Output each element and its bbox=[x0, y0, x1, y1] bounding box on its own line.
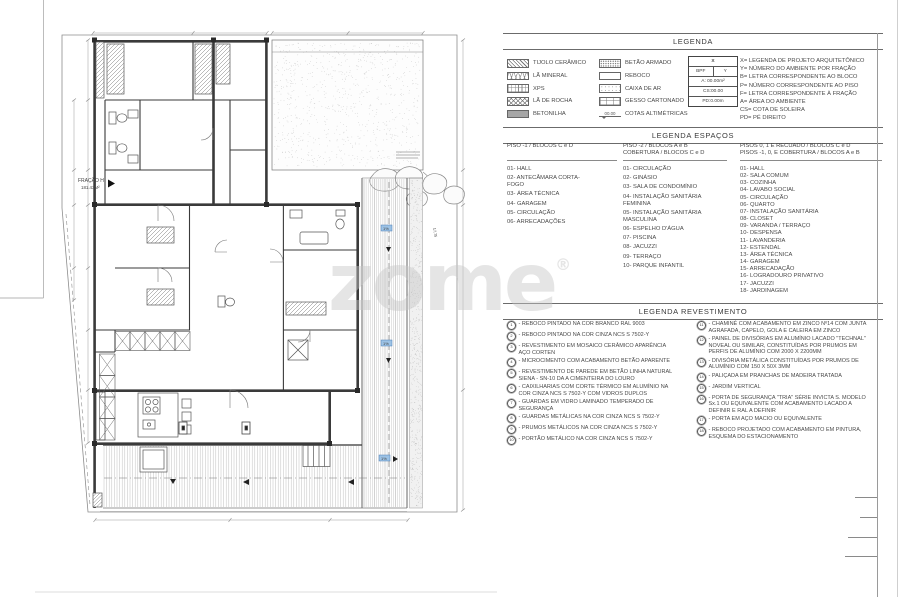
solid-gray-swatch bbox=[507, 110, 529, 119]
fraction-label: FRAÇÃO H 181.43M² bbox=[78, 177, 115, 190]
floor-plan-drawing: 1% 1% 17,75 bbox=[0, 0, 505, 597]
hatch-diagonal-swatch bbox=[507, 59, 529, 68]
space-item: 06- ESPELHO D'ÁGUA bbox=[623, 226, 705, 233]
material-label: XPS bbox=[533, 86, 545, 92]
tag-pd: PD:0.00m bbox=[689, 96, 737, 106]
legend-materials-col1: TIJOLO CERÂMICO LÃ MINERAL XPS LÃ DE ROC… bbox=[507, 57, 597, 120]
architectural-drawing-sheet: 1% 1% 17,75 bbox=[0, 0, 900, 597]
legend-abbreviations: X= LEGENDA DE PROJETO ARQUITETÔNICOY= NÚ… bbox=[740, 57, 883, 123]
finish-number-badge: 6 bbox=[507, 384, 516, 393]
abbreviation-line: B= LETRA CORRESPONDENTE AO BLOCO bbox=[740, 73, 883, 81]
space-item: 12- ESTENDAL bbox=[740, 245, 882, 252]
level-mark-symbol: 00.00 bbox=[599, 112, 621, 117]
spaces-col-2: PISO -2 / BLOCOS A e B COBERTURA / BLOCO… bbox=[623, 143, 727, 272]
finish-item: 8 - GUARDAS METÁLICAS NA COR CINZA NCS S… bbox=[507, 414, 677, 423]
tag-area: A: 00.00m² bbox=[689, 76, 737, 86]
space-item: 03- ÁREA TÉCNICA bbox=[507, 191, 589, 198]
material-label: LÃ MINERAL bbox=[533, 73, 567, 79]
finish-item: 3 - REVESTIMENTO EM MOSAICO CERÂMICO APA… bbox=[507, 343, 677, 356]
finish-item: 7 - GUARDAS EM VIDRO LAMINADO TEMPERADO … bbox=[507, 399, 677, 412]
ambient-tag-box: X BPFY A: 00.00m² CS:00.00 PD:0.00m bbox=[688, 56, 738, 107]
space-item: 03- COZINHA bbox=[740, 180, 882, 187]
finishes-col-1: 1 - REBOCO PINTADO NA COR BRANCO RAL 900… bbox=[507, 321, 677, 447]
finish-number-badge: 17 bbox=[697, 416, 706, 425]
tag-bpf-y: BPFY bbox=[689, 66, 737, 76]
legend-material-row: BETONILHA bbox=[507, 108, 597, 121]
finish-number-badge: 7 bbox=[507, 399, 516, 408]
space-item: 04- LAVABO SOCIAL bbox=[740, 187, 882, 194]
abbreviation-line: P= NÚMERO CORRESPONDENTE AO PISO bbox=[740, 82, 883, 90]
spaces-col-header: PISO -2 / BLOCOS A e B COBERTURA / BLOCO… bbox=[623, 143, 727, 161]
material-label: GESSO CARTONADO bbox=[625, 98, 684, 104]
space-item: 03- SALA DE CONDOMÍNIO bbox=[623, 184, 705, 191]
finish-number-badge: 15 bbox=[697, 384, 706, 393]
finish-item: 12 - PAINEL DE DIVISÓRIAS EM ALUMÍNIO LA… bbox=[697, 336, 875, 356]
space-item: 15- ARRECADAÇÃO bbox=[740, 266, 882, 273]
legend-material-row: LÃ MINERAL bbox=[507, 70, 597, 83]
legend-title: LEGENDA bbox=[503, 33, 883, 50]
fine-grid-swatch bbox=[507, 84, 529, 93]
space-item: 08- JACUZZI bbox=[623, 244, 705, 251]
material-label: BETONILHA bbox=[533, 111, 566, 117]
space-item: 05- INSTALAÇÃO SANITÁRIA MASCULINA bbox=[623, 210, 705, 224]
scale-tick bbox=[848, 537, 877, 538]
svg-text:FRAÇÃO H: FRAÇÃO H bbox=[78, 177, 104, 184]
legend-material-row: TIJOLO CERÂMICO bbox=[507, 57, 597, 70]
space-item: 10- PARQUE INFANTIL bbox=[623, 263, 705, 270]
space-item: 17- JACUZZI bbox=[740, 281, 882, 288]
svg-text:1%: 1% bbox=[381, 456, 387, 461]
finish-item: 18 - REBOCO PROJETADO COM ACABAMENTO EM … bbox=[697, 427, 875, 440]
spaces-col-3: PISOS 0, 1 E RECUADO / BLOCOS C e D PISO… bbox=[740, 143, 882, 295]
material-label: BETÃO ARMADO bbox=[625, 60, 671, 66]
svg-text:181.43M²: 181.43M² bbox=[81, 185, 100, 190]
space-item: 02- GINÁSIO bbox=[623, 175, 705, 182]
deck-arrow-down bbox=[170, 479, 176, 484]
abbreviation-line: A= ÁREA DO AMBIENTE bbox=[740, 98, 883, 106]
legend-material-row: 00.00 COTAS ALTIMÉTRICAS bbox=[599, 108, 711, 121]
finish-item: 14 - PALIÇADA EM PRANCHAS DE MADEIRA TRA… bbox=[697, 373, 875, 382]
space-item: 07- PISCINA bbox=[623, 235, 705, 242]
material-label: LÃ DE ROCHA bbox=[533, 98, 572, 104]
space-item: 02- SALA COMUM bbox=[740, 173, 882, 180]
space-item: 05- CIRCULAÇÃO bbox=[507, 210, 589, 217]
finish-item: 1 - REBOCO PINTADO NA COR BRANCO RAL 900… bbox=[507, 321, 677, 330]
finish-number-badge: 5 bbox=[507, 369, 516, 378]
sheet-edge-line bbox=[897, 0, 898, 597]
finish-item: 16 - PORTA DE SEGURANÇA "TRIA" SÉRIE INV… bbox=[697, 395, 875, 415]
zigzag-swatch bbox=[507, 72, 529, 81]
finish-number-badge: 10 bbox=[507, 436, 516, 445]
finish-number-badge: 18 bbox=[697, 427, 706, 436]
space-item: 07- INSTALAÇÃO SANITÁRIA bbox=[740, 209, 882, 216]
space-item: 11- LAVANDERIA bbox=[740, 238, 882, 245]
space-item: 16- LOGRADOURO PRIVATIVO bbox=[740, 273, 882, 280]
slope-marker: 1% bbox=[379, 455, 398, 462]
finish-item: 6 - CAIXILHARIAS COM CORTE TÉRMICO EM AL… bbox=[507, 384, 677, 397]
speckle-swatch bbox=[599, 59, 621, 68]
space-item: 01- HALL bbox=[507, 166, 589, 173]
finish-number-badge: 4 bbox=[507, 358, 516, 367]
material-label: REBOCO bbox=[625, 73, 650, 79]
plain-swatch bbox=[599, 72, 621, 81]
deck-planter bbox=[140, 447, 167, 472]
space-item: 09- VARANDA / TERRAÇO bbox=[740, 223, 882, 230]
finish-item: 13 - DIVISÓRIA METÁLICA CONSTITUÍDAS POR… bbox=[697, 358, 875, 371]
svg-text:1%: 1% bbox=[383, 226, 389, 231]
finishes-col-2: 11 - CHAMINÉ COM ACABAMENTO EM ZINCO Nº1… bbox=[697, 321, 875, 442]
tag-cs: CS:00.00 bbox=[689, 86, 737, 96]
scale-tick bbox=[845, 556, 877, 557]
finish-number-badge: 16 bbox=[697, 395, 706, 404]
cell-grid-swatch bbox=[599, 97, 621, 106]
space-item: 18- JARDINAGEM bbox=[740, 288, 882, 295]
spaces-col-1: PISO -1 / BLOCOS C e D 01- HALL02- ANTEC… bbox=[507, 143, 617, 228]
space-item: 09- TERRAÇO bbox=[623, 254, 705, 261]
space-item: 04- INSTALAÇÃO SANITÁRIA FEMININA bbox=[623, 194, 705, 208]
deck-stairs bbox=[303, 446, 330, 467]
deck-area: 1% bbox=[100, 445, 407, 512]
finish-number-badge: 1 bbox=[507, 321, 516, 330]
material-label: CAIXA DE AR bbox=[625, 86, 661, 92]
scale-tick bbox=[855, 497, 877, 498]
tag-x: X bbox=[689, 57, 737, 66]
title-block-border-line bbox=[877, 33, 878, 597]
material-label: COTAS ALTIMÉTRICAS bbox=[625, 111, 688, 117]
space-item: 01- HALL bbox=[740, 166, 882, 173]
space-item: 04- GARAGEM bbox=[507, 201, 589, 208]
spaces-col-header: PISO -1 / BLOCOS C e D bbox=[507, 143, 617, 161]
finish-item: 9 - PRUMOS METÁLICOS NA COR CINZA NCS S … bbox=[507, 425, 677, 434]
space-item: 06- ARRECADAÇÕES bbox=[507, 219, 589, 226]
space-item: 13- ÁREA TÉCNICA bbox=[740, 252, 882, 259]
ramp-area: 1% 1% 17,75 bbox=[362, 178, 438, 508]
finish-number-badge: 12 bbox=[697, 336, 706, 345]
scale-tick bbox=[860, 517, 877, 518]
legend-material-row: LÃ DE ROCHA bbox=[507, 95, 597, 108]
svg-text:1%: 1% bbox=[383, 341, 389, 346]
finish-number-badge: 9 bbox=[507, 425, 516, 434]
abbreviation-line: X= LEGENDA DE PROJETO ARQUITETÔNICO bbox=[740, 57, 883, 65]
finish-number-badge: 2 bbox=[507, 332, 516, 341]
finish-item: 11 - CHAMINÉ COM ACABAMENTO EM ZINCO Nº1… bbox=[697, 321, 875, 334]
finish-number-badge: 11 bbox=[697, 321, 706, 330]
finish-item: 4 - MICROCIMENTO COM ACABAMENTO BETÃO AP… bbox=[507, 358, 677, 367]
finish-item: 10 - PORTÃO METÁLICO NA COR CINZA NCS S … bbox=[507, 436, 677, 445]
space-item: 10- DESPENSA bbox=[740, 230, 882, 237]
space-item: 05- CIRCULAÇÃO bbox=[740, 195, 882, 202]
garden-stipple-area bbox=[272, 40, 423, 170]
abbreviation-line: PD= PÉ DIREITO bbox=[740, 114, 883, 122]
material-label: TIJOLO CERÂMICO bbox=[533, 60, 586, 66]
diamond-hatch-swatch bbox=[507, 97, 529, 106]
finish-item: 2 - REBOCO PINTADO NA COR CINZA NCS S 75… bbox=[507, 332, 677, 341]
legend-column: LEGENDA TIJOLO CERÂMICO LÃ MINERAL XPS bbox=[503, 0, 883, 597]
space-item: 06- QUARTO bbox=[740, 202, 882, 209]
slope-marker: 1% bbox=[381, 340, 392, 363]
abbreviation-line: CS= COTA DE SOLEIRA bbox=[740, 106, 883, 114]
finish-item: 5 - REVESTIMENTO DE PAREDE EM BETÃO LINH… bbox=[507, 369, 677, 382]
slope-marker: 1% bbox=[381, 225, 392, 252]
spaces-title: LEGENDA ESPAÇOS bbox=[503, 127, 883, 144]
finish-item: 15 - JARDIM VERTICAL bbox=[697, 384, 875, 393]
finish-number-badge: 14 bbox=[697, 373, 706, 382]
finish-number-badge: 8 bbox=[507, 414, 516, 423]
space-item: 08- CLOSET bbox=[740, 216, 882, 223]
space-item: 01- CIRCULAÇÃO bbox=[623, 166, 705, 173]
dimension-label: 17,75 bbox=[432, 227, 438, 237]
finish-number-badge: 13 bbox=[697, 358, 706, 367]
light-speckle-swatch bbox=[599, 84, 621, 93]
spaces-col-header: PISOS 0, 1 E RECUADO / BLOCOS C e D PISO… bbox=[740, 143, 882, 161]
finish-number-badge: 3 bbox=[507, 343, 516, 352]
legend-material-row: XPS bbox=[507, 82, 597, 95]
deck-arrow-left bbox=[243, 479, 249, 485]
abbreviation-line: F= LETRA CORRESPONDENTE À FRAÇÃO bbox=[740, 90, 883, 98]
finishes-title: LEGENDA REVESTIMENTO bbox=[503, 303, 883, 320]
abbreviation-line: Y= NÚMERO DO AMBIENTE POR FRAÇÃO bbox=[740, 65, 883, 73]
space-item: 02- ANTECÂMARA CORTA-FOGO bbox=[507, 175, 589, 189]
finish-item: 17 - PORTA EM AÇO MACIO OU EQUIVALENTE bbox=[697, 416, 875, 425]
